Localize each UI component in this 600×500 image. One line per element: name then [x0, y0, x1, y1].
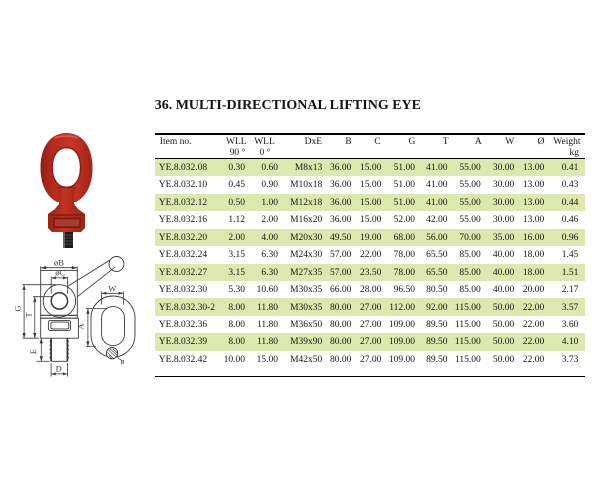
- svg-text:G: G: [13, 305, 23, 311]
- svg-text:A: A: [75, 323, 85, 330]
- svg-text:W: W: [108, 283, 116, 293]
- svg-text:øB: øB: [54, 257, 64, 267]
- svg-text:E: E: [28, 349, 38, 354]
- svg-text:øC: øC: [55, 267, 65, 277]
- svg-text:ø: ø: [121, 357, 125, 366]
- svg-text:D: D: [56, 364, 62, 374]
- svg-text:T: T: [23, 312, 33, 318]
